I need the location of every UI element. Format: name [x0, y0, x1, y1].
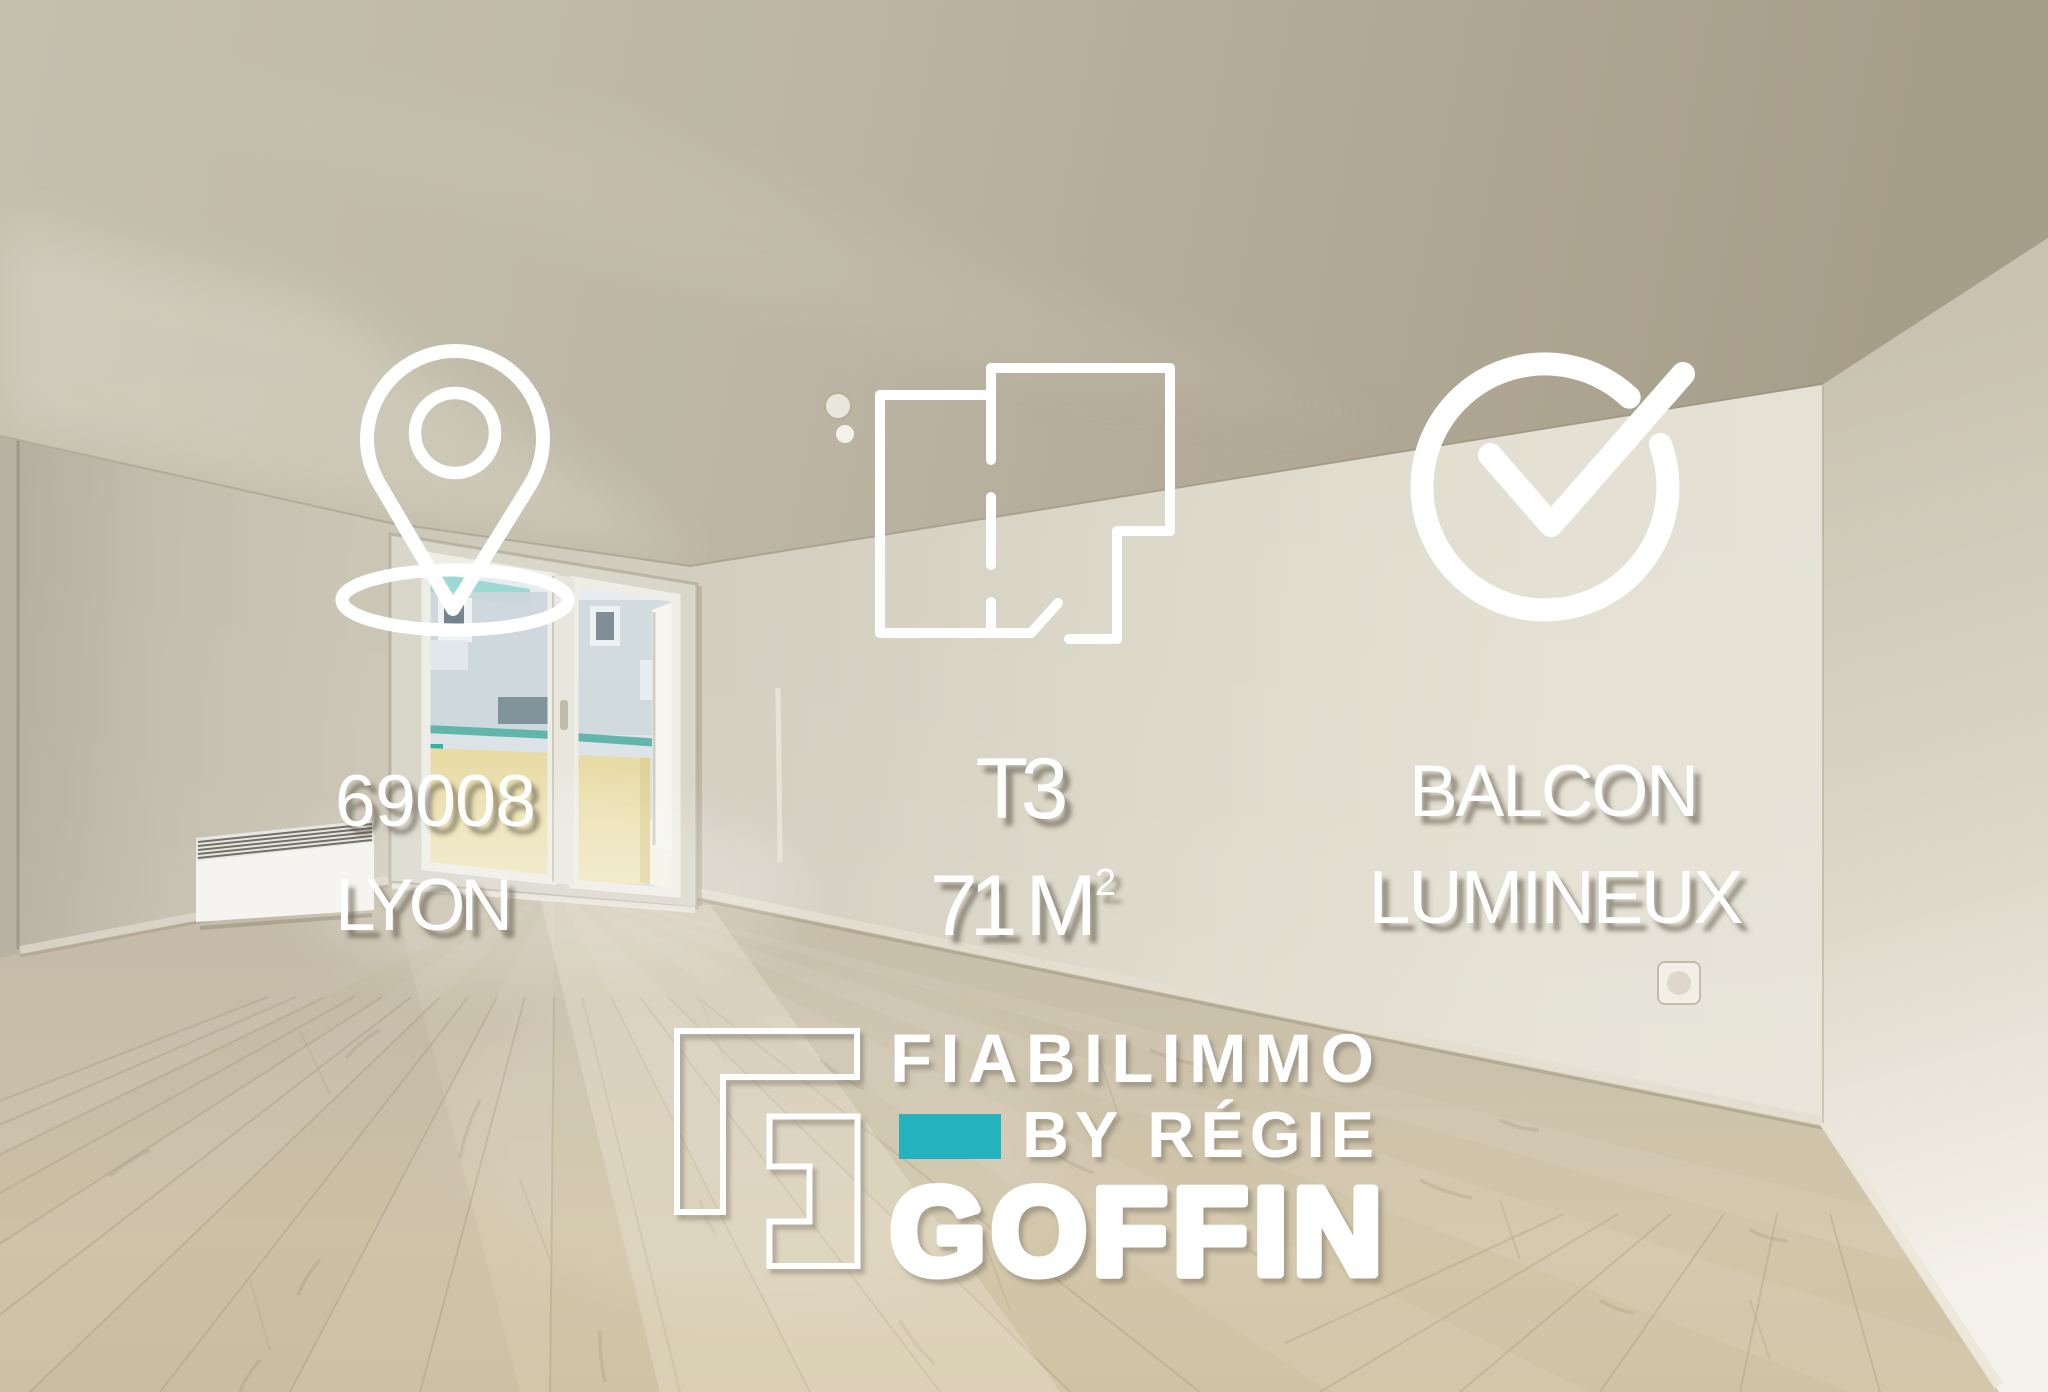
- svg-text:T3: T3: [976, 741, 1069, 837]
- svg-text:69008: 69008: [335, 761, 536, 842]
- svg-text:LYON: LYON: [335, 865, 513, 946]
- svg-text:LUMINEUX: LUMINEUX: [1369, 855, 1744, 939]
- svg-text:71 M2: 71 M2: [930, 858, 1116, 954]
- svg-text:GOFFIN: GOFFIN: [890, 1164, 1382, 1301]
- svg-text:BALCON: BALCON: [1409, 751, 1699, 832]
